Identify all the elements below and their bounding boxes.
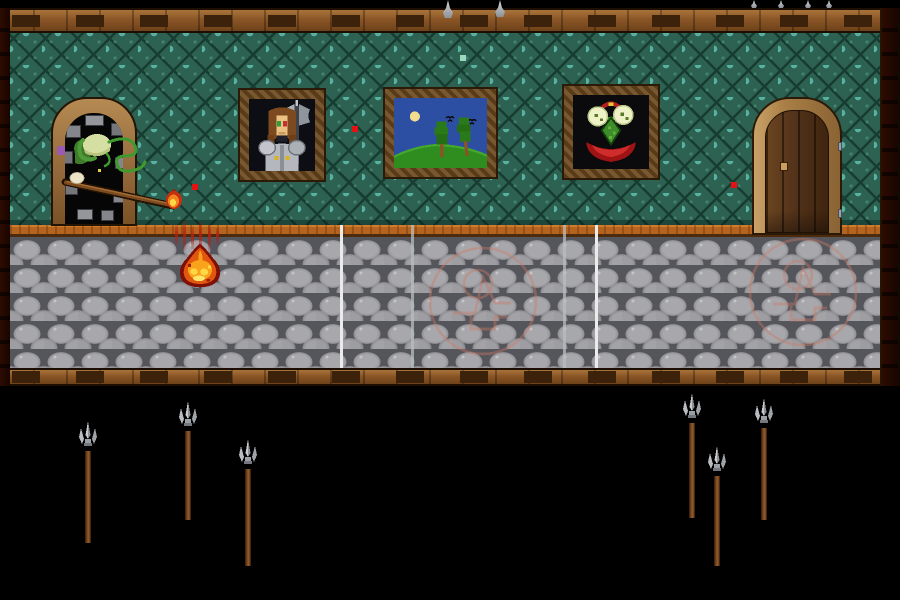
ceiling-spear-tip	[751, 0, 757, 8]
spear-shaft	[85, 451, 91, 543]
trident-head-icon	[178, 401, 198, 431]
trident-head-icon	[682, 393, 702, 423]
painting-plant	[562, 84, 660, 180]
spear-shaft	[185, 431, 191, 520]
trident-head-icon	[78, 421, 98, 451]
game-scene	[0, 0, 900, 600]
baseboard	[10, 225, 880, 237]
ceiling-spear-tip	[805, 0, 811, 8]
door-hinge	[838, 209, 842, 218]
pit-spear	[178, 401, 198, 520]
floor-beam	[0, 368, 900, 386]
painting-knight	[238, 88, 326, 182]
painting-landscape	[383, 87, 498, 179]
trident-head-icon	[707, 446, 727, 476]
door-handle[interactable]	[780, 162, 788, 171]
floor-fire	[175, 242, 225, 288]
left-wall-beam	[0, 8, 10, 386]
plant-art	[573, 95, 649, 169]
spear-shaft	[245, 469, 251, 566]
pit-spear	[682, 393, 702, 518]
stone-block	[85, 115, 104, 126]
spear-shaft	[689, 423, 695, 518]
ceiling-spear-tip	[778, 0, 784, 8]
right-door[interactable]	[752, 97, 842, 235]
spear-shaft	[714, 476, 720, 566]
landscape-art	[394, 98, 487, 168]
bottom-spears-layer	[0, 386, 900, 600]
door-hinge	[838, 142, 842, 151]
pit-spear	[707, 446, 727, 566]
pit-spear	[754, 398, 774, 520]
top-spear-tips-layer	[0, 0, 900, 40]
ceiling-spear-tip	[443, 0, 453, 18]
pit-spear	[238, 439, 258, 566]
pit-spear	[78, 421, 98, 543]
ceiling-spear-tip	[495, 0, 505, 17]
ceiling-spear-tip	[826, 0, 832, 8]
knight-portrait-art	[249, 99, 315, 171]
goblin-enemy[interactable]	[53, 128, 193, 216]
cobblestone-floor	[10, 237, 880, 368]
right-wall-beam	[880, 8, 900, 386]
spear-shaft	[761, 428, 767, 520]
trident-head-icon	[754, 398, 774, 428]
door-panel	[765, 110, 829, 233]
trident-head-icon	[238, 439, 258, 469]
